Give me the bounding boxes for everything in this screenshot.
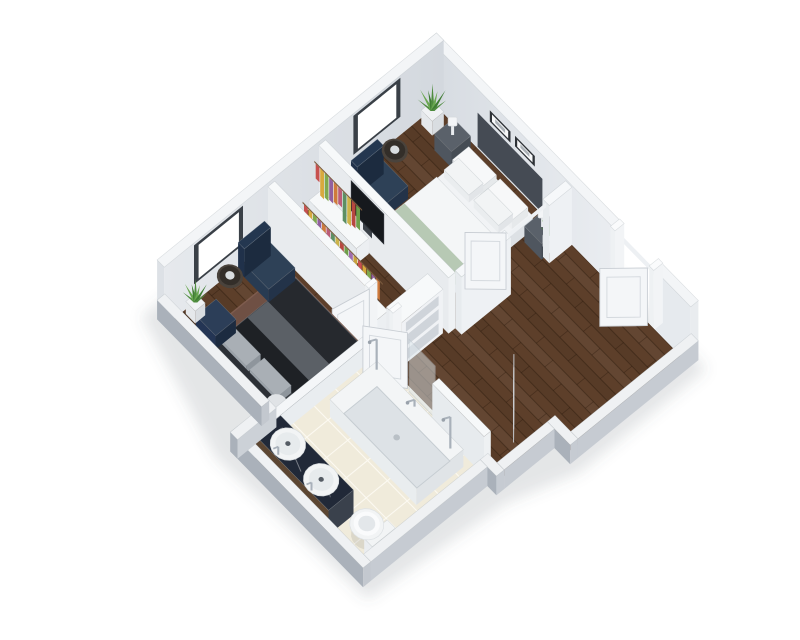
entry-door <box>600 268 648 326</box>
floor-plan-image <box>0 0 800 640</box>
sink-1 <box>270 428 305 461</box>
entry-door-frame-right <box>649 259 663 331</box>
master-door <box>465 232 506 289</box>
floor-plan-scene <box>0 0 800 640</box>
